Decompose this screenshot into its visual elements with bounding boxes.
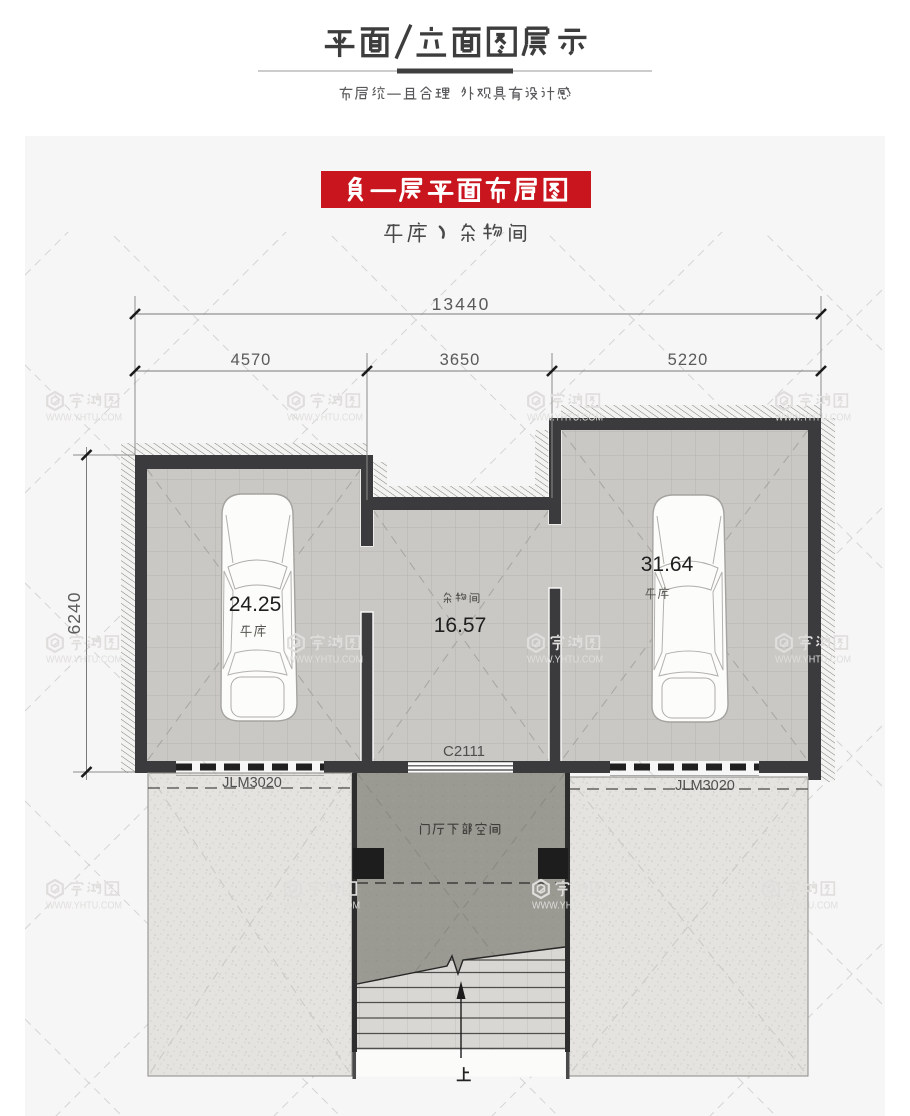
- svg-text:C2111: C2111: [443, 743, 485, 760]
- svg-text:5220: 5220: [668, 351, 709, 369]
- svg-text:13440: 13440: [432, 294, 491, 314]
- svg-text:31.64: 31.64: [641, 553, 694, 576]
- svg-text:JLM3020: JLM3020: [675, 778, 735, 794]
- svg-text:16.57: 16.57: [434, 614, 487, 637]
- svg-text:24.25: 24.25: [229, 593, 282, 616]
- svg-text:3650: 3650: [440, 351, 481, 369]
- svg-text:4570: 4570: [231, 351, 272, 369]
- svg-text:6240: 6240: [64, 592, 84, 635]
